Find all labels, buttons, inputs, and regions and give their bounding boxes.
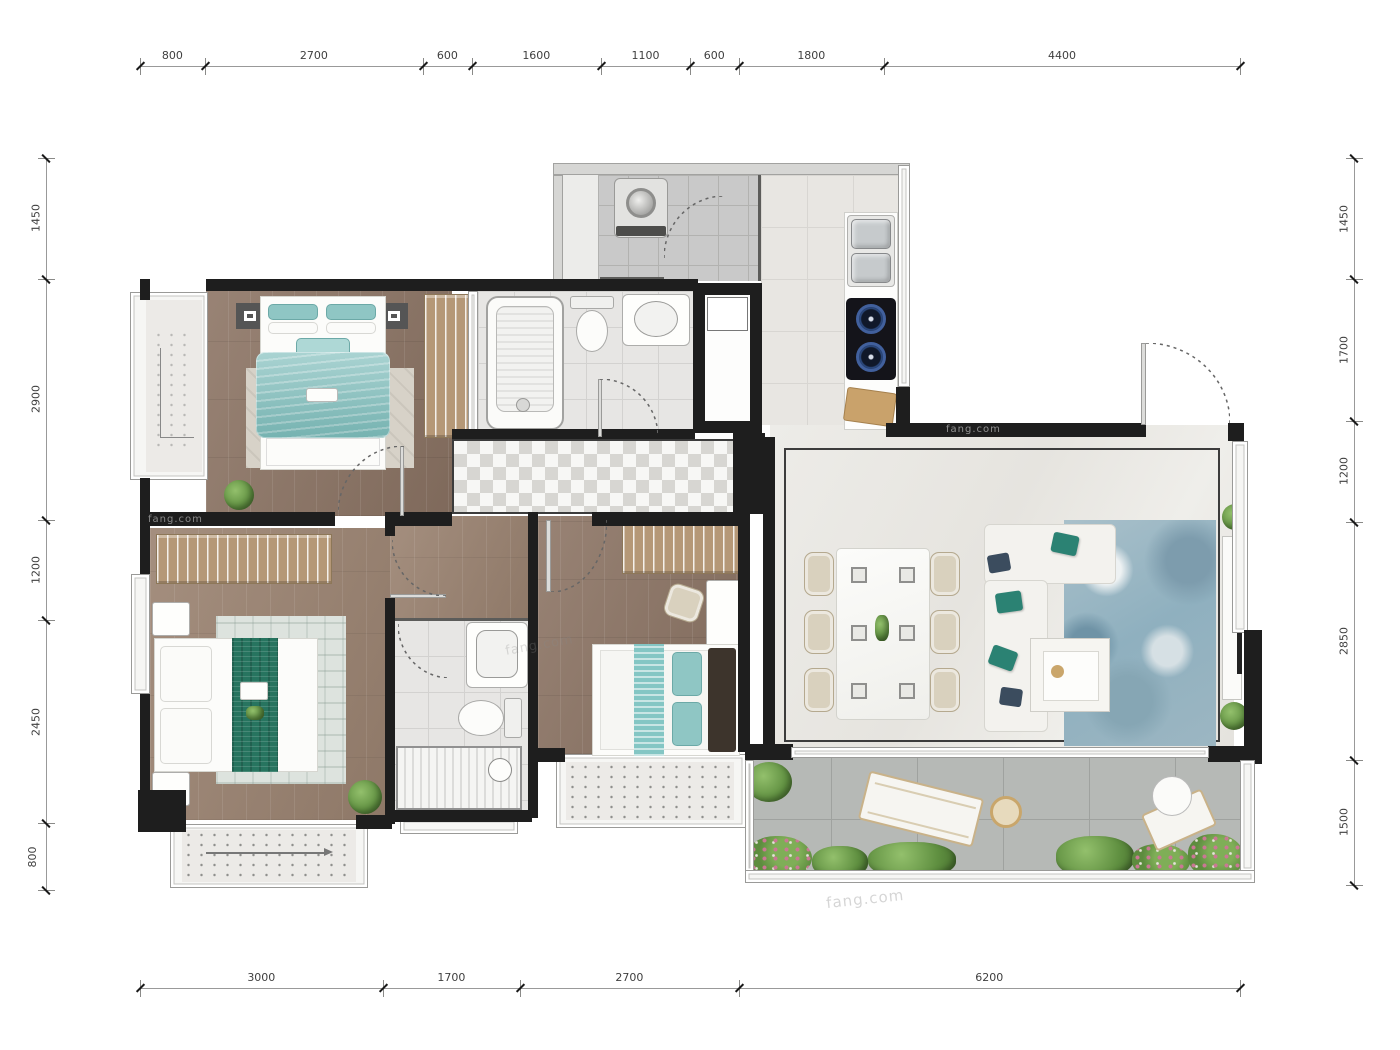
dimension-value: 1700 (1338, 336, 1351, 364)
dimension-value: 1500 (1338, 808, 1351, 836)
dimension-tick (601, 58, 602, 75)
dimension-value: 2850 (1338, 627, 1351, 655)
watermark: fang.com (148, 514, 203, 525)
dimension-tick (1346, 522, 1363, 523)
dimension-value: 1450 (1338, 205, 1351, 233)
dimension-layer: 8002700600160011006001800440030001700270… (0, 0, 1400, 1050)
dimension-value: 800 (26, 846, 39, 867)
dimension-tick (739, 58, 740, 75)
dimension-tick (38, 158, 55, 159)
dimension-tick (38, 890, 55, 891)
dimension-tick (884, 58, 885, 75)
dimension-value: 800 (162, 49, 183, 62)
dimension-value: 1800 (797, 49, 825, 62)
dimension-value: 1200 (30, 556, 43, 584)
dimension-tick (1346, 760, 1363, 761)
dimension-tick (1240, 58, 1241, 75)
dimension-tick (140, 980, 141, 997)
dimension-tick-slash (1236, 61, 1245, 70)
dimension-tick (520, 980, 521, 997)
dimension-tick (383, 980, 384, 997)
dimension-value: 4400 (1048, 49, 1076, 62)
dimension-value: 6200 (975, 971, 1003, 984)
dimension-value: 600 (704, 49, 725, 62)
dimension-value: 1700 (437, 971, 465, 984)
watermark: fang.com (946, 424, 1001, 435)
dimension-value: 3000 (247, 971, 275, 984)
dimension-value: 1600 (522, 49, 550, 62)
dimension-tick (739, 980, 740, 997)
dimension-tick (140, 58, 141, 75)
floorplan-canvas: fang.com fang.com fang.com fang.com 8002… (0, 0, 1400, 1050)
dimension-tick (1346, 158, 1363, 159)
dimension-tick (423, 58, 424, 75)
dimension-tick-slash (1236, 983, 1245, 992)
dimension-line (140, 988, 1240, 989)
dimension-tick (38, 620, 55, 621)
dimension-tick (690, 58, 691, 75)
dimension-tick (205, 58, 206, 75)
dimension-tick (1346, 279, 1363, 280)
dimension-tick (38, 823, 55, 824)
dimension-tick (1346, 421, 1363, 422)
dimension-value: 2900 (30, 385, 43, 413)
dimension-value: 1200 (1338, 457, 1351, 485)
dimension-value: 1450 (30, 204, 43, 232)
dimension-value: 2700 (300, 49, 328, 62)
dimension-value: 1100 (632, 49, 660, 62)
dimension-tick (38, 279, 55, 280)
dimension-line (46, 158, 47, 890)
dimension-value: 2700 (615, 971, 643, 984)
dimension-tick (38, 520, 55, 521)
dimension-tick (1346, 885, 1363, 886)
dimension-value: 600 (437, 49, 458, 62)
dimension-tick (1240, 980, 1241, 997)
dimension-tick (472, 58, 473, 75)
dimension-value: 2450 (30, 708, 43, 736)
